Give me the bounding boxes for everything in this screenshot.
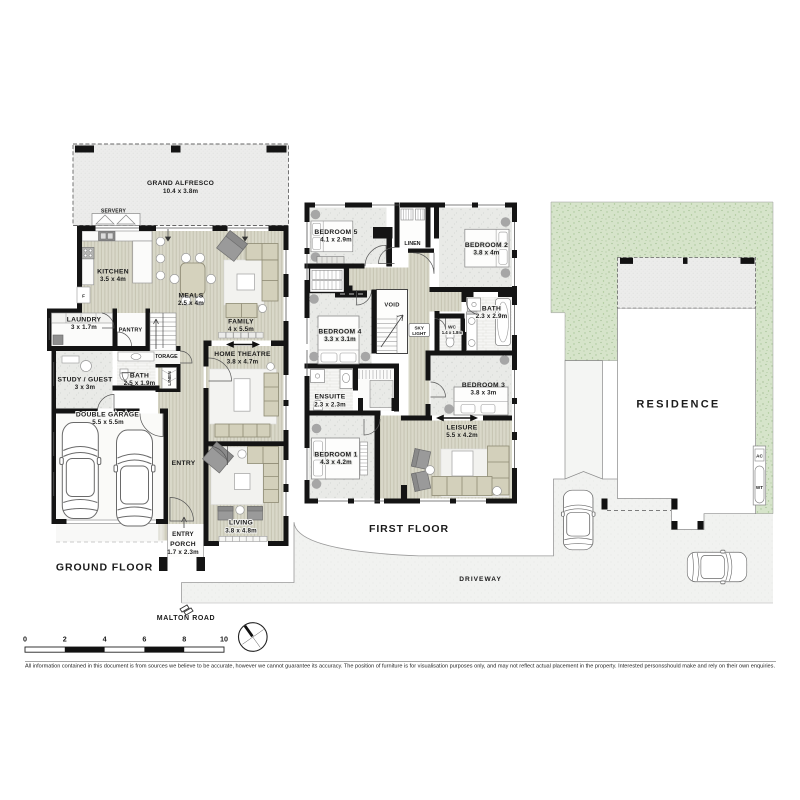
- svg-text:1.4 x 1.8m: 1.4 x 1.8m: [442, 330, 463, 335]
- svg-text:LIGHT: LIGHT: [412, 331, 426, 336]
- svg-text:2: 2: [63, 635, 67, 644]
- svg-text:0: 0: [23, 635, 27, 644]
- svg-text:LINEN: LINEN: [167, 371, 173, 386]
- svg-text:BEDROOM 4: BEDROOM 4: [318, 329, 361, 336]
- svg-text:VOID: VOID: [384, 303, 399, 309]
- svg-text:4.3 x 4.2m: 4.3 x 4.2m: [320, 459, 352, 466]
- svg-text:3.8 x 3m: 3.8 x 3m: [470, 390, 496, 397]
- svg-text:5.5 x 5.5m: 5.5 x 5.5m: [92, 419, 124, 426]
- svg-text:5.5 x 4.2m: 5.5 x 4.2m: [446, 432, 478, 439]
- svg-text:8: 8: [182, 635, 186, 644]
- svg-text:DOUBLE GARAGE: DOUBLE GARAGE: [76, 412, 140, 419]
- svg-text:PORCH: PORCH: [170, 541, 196, 548]
- svg-text:DRIVEWAY: DRIVEWAY: [459, 576, 502, 583]
- svg-text:MEALS: MEALS: [179, 293, 204, 300]
- svg-text:10: 10: [220, 635, 228, 644]
- svg-text:KITCHEN: KITCHEN: [97, 269, 129, 276]
- svg-text:3.8 x 4m: 3.8 x 4m: [473, 250, 499, 257]
- svg-text:RESIDENCE: RESIDENCE: [636, 399, 720, 411]
- svg-text:2.3 x 2.3m: 2.3 x 2.3m: [314, 402, 346, 409]
- svg-text:1.7 x 2.3m: 1.7 x 2.3m: [167, 549, 199, 556]
- svg-text:10.4 x 3.8m: 10.4 x 3.8m: [163, 188, 199, 195]
- svg-text:LEISURE: LEISURE: [446, 425, 477, 432]
- svg-text:2.3 x 2.9m: 2.3 x 2.9m: [476, 313, 508, 320]
- svg-text:3.5 x 4m: 3.5 x 4m: [100, 276, 126, 283]
- svg-text:3.8 x 4.7m: 3.8 x 4.7m: [227, 359, 259, 366]
- svg-text:ENTRY: ENTRY: [172, 531, 194, 538]
- svg-text:HOME THEATRE: HOME THEATRE: [214, 351, 271, 358]
- svg-text:WT: WT: [756, 485, 763, 490]
- svg-text:BATH: BATH: [482, 306, 501, 313]
- svg-text:BATH: BATH: [130, 373, 149, 380]
- svg-text:F: F: [82, 294, 85, 299]
- svg-text:3.3 x 3.1m: 3.3 x 3.1m: [324, 336, 356, 343]
- svg-text:BEDROOM 2: BEDROOM 2: [465, 242, 508, 249]
- svg-text:6: 6: [142, 635, 146, 644]
- svg-text:All information contained in t: All information contained in this docume…: [25, 664, 775, 670]
- svg-text:GRAND ALFRESCO: GRAND ALFRESCO: [147, 180, 214, 187]
- svg-text:4 x 5.5m: 4 x 5.5m: [228, 326, 254, 333]
- svg-text:LIVING: LIVING: [229, 520, 253, 527]
- svg-text:4: 4: [103, 635, 107, 644]
- svg-text:ENSUITE: ENSUITE: [314, 394, 345, 401]
- svg-text:BEDROOM 1: BEDROOM 1: [314, 452, 357, 459]
- svg-text:2.5 x 4m: 2.5 x 4m: [178, 300, 204, 307]
- svg-text:STUDY / GUEST: STUDY / GUEST: [57, 377, 113, 384]
- svg-text:ENTRY: ENTRY: [172, 460, 196, 467]
- svg-text:MALTON ROAD: MALTON ROAD: [157, 615, 215, 622]
- svg-text:3.8 x 4.8m: 3.8 x 4.8m: [225, 528, 257, 535]
- svg-text:LINEN: LINEN: [404, 241, 420, 247]
- svg-text:BEDROOM 3: BEDROOM 3: [462, 382, 505, 389]
- svg-text:4.1 x 2.9m: 4.1 x 2.9m: [320, 237, 352, 244]
- svg-text:3 x 3m: 3 x 3m: [75, 384, 96, 391]
- svg-text:BEDROOM 5: BEDROOM 5: [314, 229, 357, 236]
- svg-text:FIRST FLOOR: FIRST FLOOR: [369, 523, 449, 535]
- svg-text:3 x 1.7m: 3 x 1.7m: [71, 324, 97, 331]
- svg-text:LAUNDRY: LAUNDRY: [67, 317, 102, 324]
- svg-text:FAMILY: FAMILY: [228, 319, 254, 326]
- svg-text:SKY: SKY: [414, 326, 423, 331]
- svg-text:AC: AC: [756, 454, 763, 459]
- svg-text:GROUND FLOOR: GROUND FLOOR: [56, 562, 153, 574]
